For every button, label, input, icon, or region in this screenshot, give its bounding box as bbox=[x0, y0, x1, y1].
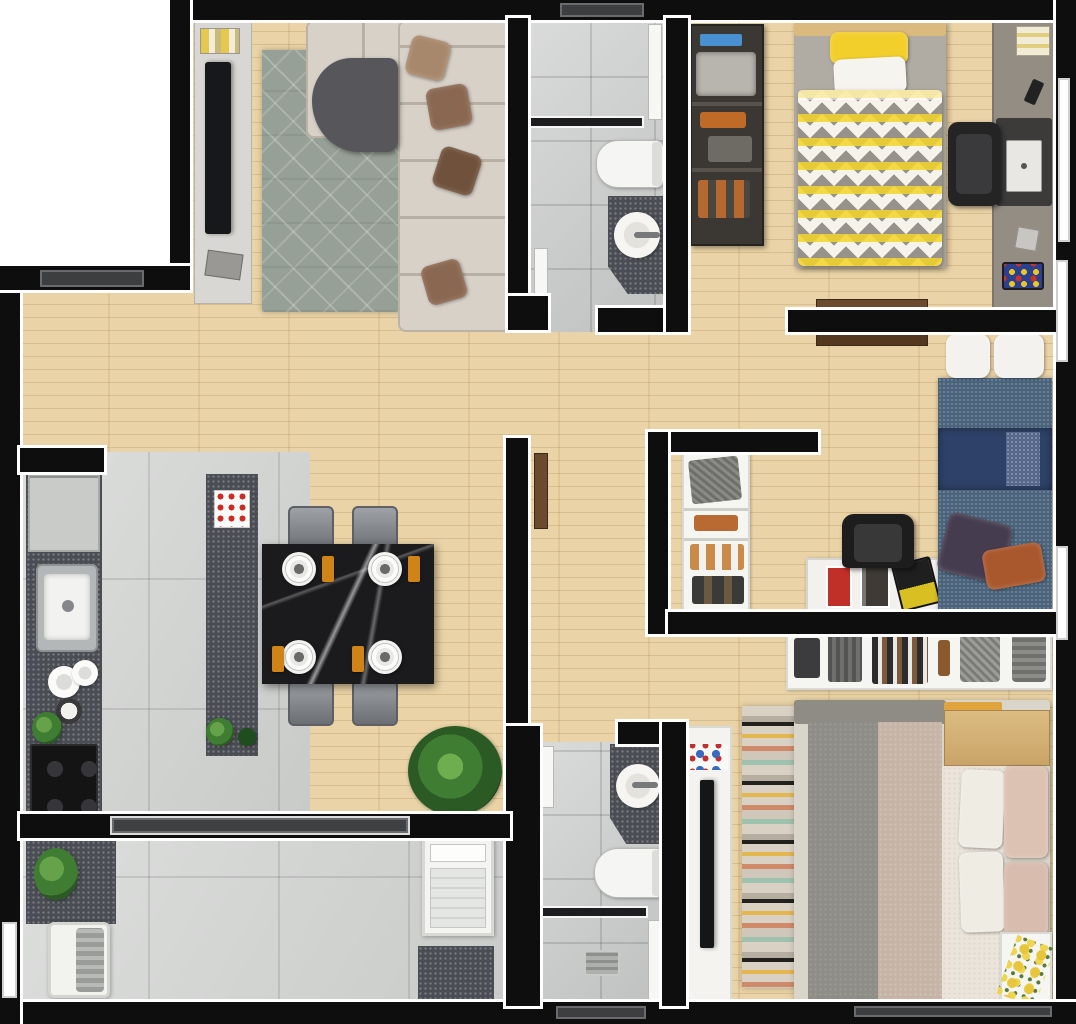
shelf-2-divider-1 bbox=[684, 508, 748, 511]
master-pillow-white-1 bbox=[958, 769, 1006, 849]
laundry-counter-2 bbox=[418, 946, 494, 1004]
dining-chair-4 bbox=[352, 680, 398, 726]
wall-bath2-left bbox=[506, 726, 540, 1006]
shower-screen-1 bbox=[648, 24, 662, 120]
shelf-2-shoes bbox=[690, 544, 744, 570]
chair-2-seat bbox=[854, 524, 902, 562]
wall-bath1-bottom-left bbox=[508, 296, 548, 330]
cooktop-burners bbox=[30, 744, 98, 820]
napkin-1 bbox=[322, 556, 334, 582]
daybed-navy-patch bbox=[1006, 432, 1040, 486]
shelf-2-divider-2 bbox=[684, 538, 748, 541]
napkin-4 bbox=[352, 646, 364, 672]
wall-tv-icon bbox=[205, 62, 231, 234]
bedroom-1-door-leaf bbox=[816, 299, 928, 310]
window-bottom-master bbox=[854, 1006, 1052, 1017]
napkin-3 bbox=[272, 646, 284, 672]
floor-plan-canvas bbox=[0, 0, 1076, 1024]
faucet-1 bbox=[634, 232, 660, 238]
island-red-towel bbox=[214, 490, 250, 528]
fridge bbox=[28, 474, 100, 552]
window-bottom-bath2 bbox=[556, 1006, 646, 1019]
sideboard-books bbox=[200, 28, 240, 54]
shower-drain-2 bbox=[584, 950, 620, 976]
window-step-wall bbox=[40, 270, 144, 287]
bathroom-2-door-leaf bbox=[540, 746, 554, 808]
master-shelf-item-camera bbox=[794, 638, 820, 678]
wall-bedroom2-left bbox=[648, 432, 668, 634]
wall-outer-left bbox=[0, 266, 20, 1024]
sofa-pillow-2 bbox=[425, 83, 474, 132]
desk-1-small-box bbox=[1014, 226, 1039, 251]
master-shelf-item-belt bbox=[938, 640, 950, 676]
master-shelf-item-hangers bbox=[872, 632, 928, 684]
master-pillow-white-2 bbox=[959, 851, 1006, 932]
dining-chair-3 bbox=[288, 680, 334, 726]
napkin-2 bbox=[408, 556, 420, 582]
toilet-2-tank bbox=[652, 850, 662, 896]
master-headboard-gray bbox=[794, 700, 946, 724]
desk-1-lego-art bbox=[1002, 262, 1044, 290]
bedroom-2-door-leaf bbox=[816, 334, 928, 346]
master-pillow-blush-1 bbox=[1004, 766, 1048, 858]
master-wood-bench bbox=[944, 710, 1050, 766]
plate-1 bbox=[282, 552, 316, 586]
master-shelf-item-basket bbox=[960, 634, 1000, 682]
master-duvet-taupe bbox=[878, 722, 942, 1006]
wall-bedroom1-bottom bbox=[788, 310, 1056, 332]
shower-glass-partition-2 bbox=[540, 908, 646, 916]
desk-2-dark-item bbox=[860, 564, 890, 608]
wardrobe-item-clothes bbox=[696, 52, 756, 96]
wall-bath1-bedroom1 bbox=[666, 18, 688, 332]
faucet-2 bbox=[632, 782, 658, 788]
shower-screen-2 bbox=[648, 920, 662, 1004]
chair-1-seat bbox=[956, 134, 992, 194]
master-pillow-blush-2 bbox=[1004, 862, 1048, 936]
shelf-2-bag bbox=[688, 456, 742, 505]
corridor-door-leaf bbox=[534, 453, 548, 529]
wall-corridor-left bbox=[506, 438, 528, 740]
master-wall-tv bbox=[700, 780, 714, 948]
wall-bath2-right bbox=[662, 722, 686, 1006]
bed-1-duvet-fold bbox=[798, 90, 942, 100]
washer-drum-panel bbox=[430, 868, 486, 928]
wall-left-upper bbox=[170, 0, 190, 290]
washer-lid bbox=[430, 844, 486, 862]
daybed-cushion-right bbox=[994, 334, 1044, 378]
window-right-2 bbox=[1056, 260, 1068, 362]
wardrobe-item-blue bbox=[700, 34, 742, 46]
island-plant-green bbox=[206, 718, 234, 746]
wardrobe-item-gray bbox=[708, 136, 752, 162]
window-bath1-top bbox=[560, 3, 644, 17]
kitchen-herb-plant bbox=[32, 712, 62, 744]
laundry-tank-board bbox=[76, 928, 104, 992]
laptop-1-logo-dot bbox=[1021, 163, 1027, 169]
plate-4 bbox=[368, 640, 402, 674]
wardrobe-shelf-line-2 bbox=[692, 168, 762, 172]
window-right-1 bbox=[1058, 78, 1070, 242]
wall-kitchen-top bbox=[20, 448, 104, 472]
shelf-2-boots bbox=[692, 576, 744, 604]
island-plant-dark bbox=[238, 728, 256, 746]
kitchen-faucet bbox=[62, 600, 74, 612]
window-laundry-left bbox=[2, 922, 17, 998]
shelf-2-clothes bbox=[694, 515, 738, 531]
bed-1-chevron-duvet bbox=[798, 90, 942, 266]
media-console-icon bbox=[204, 250, 243, 281]
wall-bedroom2-top bbox=[648, 432, 818, 452]
wardrobe-item-boots bbox=[698, 180, 750, 218]
glass-door-kitchen-laundry bbox=[112, 818, 408, 833]
daybed-cushion-left bbox=[946, 334, 990, 378]
toilet-1-tank bbox=[652, 142, 662, 186]
wall-bedroom2-master-divider bbox=[668, 612, 1056, 634]
master-shelf-item-jacket bbox=[1012, 634, 1046, 682]
wardrobe-item-orange-shoes bbox=[700, 112, 746, 128]
dresser-items bbox=[690, 744, 728, 770]
wall-bath1-bottom-right bbox=[598, 308, 668, 332]
kitchen-plate-2 bbox=[72, 660, 98, 686]
desk-2-red-poster bbox=[826, 566, 852, 608]
window-right-3 bbox=[1056, 546, 1068, 640]
master-shelf-item-gear bbox=[828, 634, 862, 682]
shower-glass-partition-1 bbox=[530, 118, 642, 126]
wardrobe-shelf-line-1 bbox=[692, 102, 762, 106]
desk-1-papers bbox=[1016, 26, 1050, 56]
master-duvet-gray bbox=[808, 722, 878, 1006]
wall-bath2-top bbox=[618, 722, 666, 744]
plate-2 bbox=[368, 552, 402, 586]
wall-living-bath1 bbox=[508, 18, 528, 308]
plate-3 bbox=[282, 640, 316, 674]
exterior-area bbox=[0, 0, 170, 268]
laundry-plant bbox=[34, 848, 78, 900]
dining-potted-plant bbox=[408, 726, 502, 816]
